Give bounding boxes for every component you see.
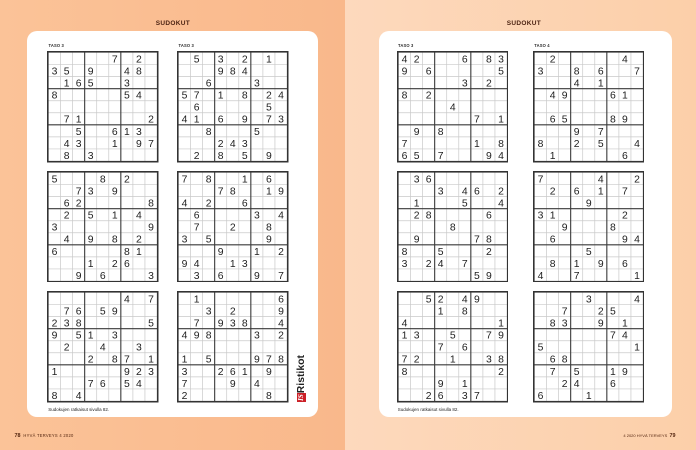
svg-text:2: 2	[425, 391, 431, 402]
svg-text:9: 9	[278, 307, 284, 318]
svg-text:2: 2	[242, 54, 248, 65]
svg-text:2: 2	[486, 246, 492, 257]
svg-text:6: 6	[401, 151, 407, 162]
svg-text:8: 8	[498, 355, 504, 366]
svg-text:3: 3	[242, 139, 248, 150]
svg-text:2: 2	[218, 139, 224, 150]
svg-text:8: 8	[242, 319, 248, 330]
svg-text:8: 8	[206, 174, 212, 185]
svg-text:7: 7	[76, 186, 82, 197]
svg-text:1: 1	[598, 79, 604, 90]
svg-text:2: 2	[88, 355, 94, 366]
svg-text:2: 2	[206, 198, 212, 209]
svg-text:4: 4	[622, 54, 628, 65]
svg-text:1: 1	[148, 355, 154, 366]
svg-text:8: 8	[64, 151, 70, 162]
svg-text:3: 3	[52, 67, 58, 78]
svg-text:3: 3	[401, 259, 407, 270]
svg-text:6: 6	[549, 234, 555, 245]
svg-text:6: 6	[218, 271, 224, 282]
svg-text:7: 7	[437, 151, 443, 162]
svg-text:8: 8	[401, 246, 407, 257]
svg-text:1: 1	[218, 91, 224, 102]
svg-text:1: 1	[230, 259, 236, 270]
svg-text:7: 7	[401, 355, 407, 366]
svg-text:1: 1	[112, 139, 118, 150]
svg-text:1: 1	[498, 115, 504, 126]
svg-text:8: 8	[266, 222, 272, 233]
svg-text:5: 5	[206, 355, 212, 366]
svg-text:2: 2	[634, 174, 640, 185]
svg-text:8: 8	[498, 139, 504, 150]
svg-text:7: 7	[634, 67, 640, 78]
svg-text:7: 7	[64, 115, 70, 126]
svg-text:9: 9	[254, 355, 260, 366]
svg-text:3: 3	[537, 210, 543, 221]
svg-text:6: 6	[194, 210, 200, 221]
svg-text:3: 3	[254, 79, 260, 90]
svg-text:9: 9	[136, 139, 142, 150]
svg-text:5: 5	[473, 271, 479, 282]
svg-text:1: 1	[549, 151, 555, 162]
svg-text:9: 9	[413, 127, 419, 138]
svg-text:9: 9	[124, 367, 130, 378]
svg-text:8: 8	[449, 222, 455, 233]
svg-text:5: 5	[425, 295, 431, 306]
svg-text:9: 9	[437, 379, 443, 390]
svg-text:4: 4	[124, 67, 130, 78]
svg-text:1: 1	[622, 91, 628, 102]
svg-text:6: 6	[610, 91, 616, 102]
svg-text:6: 6	[64, 198, 70, 209]
svg-text:7: 7	[574, 271, 580, 282]
svg-text:5: 5	[182, 91, 188, 102]
svg-text:1: 1	[598, 186, 604, 197]
svg-text:4: 4	[574, 379, 580, 390]
svg-text:6: 6	[206, 79, 212, 90]
svg-text:3: 3	[148, 367, 154, 378]
svg-text:8: 8	[574, 67, 580, 78]
svg-text:4: 4	[254, 379, 260, 390]
svg-text:4: 4	[461, 186, 467, 197]
svg-text:3: 3	[537, 67, 543, 78]
svg-text:3: 3	[461, 391, 467, 402]
svg-text:5: 5	[88, 79, 94, 90]
svg-text:4: 4	[278, 319, 284, 330]
svg-text:6: 6	[76, 307, 82, 318]
svg-text:2: 2	[112, 259, 118, 270]
svg-text:1: 1	[498, 319, 504, 330]
svg-text:9: 9	[562, 91, 568, 102]
svg-text:9: 9	[574, 127, 580, 138]
svg-text:9: 9	[622, 115, 628, 126]
svg-text:9: 9	[112, 186, 118, 197]
svg-text:8: 8	[486, 54, 492, 65]
svg-text:3: 3	[182, 367, 188, 378]
svg-text:9: 9	[486, 271, 492, 282]
svg-text:2: 2	[425, 91, 431, 102]
svg-text:4: 4	[498, 151, 504, 162]
svg-text:9: 9	[148, 222, 154, 233]
svg-text:4: 4	[634, 139, 640, 150]
svg-text:9: 9	[622, 367, 628, 378]
svg-text:7: 7	[266, 115, 272, 126]
svg-text:1: 1	[194, 115, 200, 126]
svg-text:9: 9	[266, 151, 272, 162]
svg-text:6: 6	[230, 367, 236, 378]
svg-text:3: 3	[64, 319, 70, 330]
svg-text:3: 3	[136, 127, 142, 138]
svg-text:4: 4	[278, 210, 284, 221]
svg-text:2: 2	[413, 54, 419, 65]
svg-text:8: 8	[401, 367, 407, 378]
svg-text:8: 8	[549, 259, 555, 270]
svg-text:1: 1	[610, 367, 616, 378]
svg-text:4: 4	[598, 174, 604, 185]
svg-text:3: 3	[230, 319, 236, 330]
svg-text:7: 7	[278, 271, 284, 282]
svg-text:1: 1	[112, 210, 118, 221]
svg-text:3: 3	[88, 151, 94, 162]
svg-text:2: 2	[413, 210, 419, 221]
svg-text:2: 2	[278, 246, 284, 257]
svg-text:2: 2	[136, 367, 142, 378]
svg-text:4: 4	[401, 54, 407, 65]
svg-text:7: 7	[266, 355, 272, 366]
svg-text:7: 7	[437, 343, 443, 354]
svg-text:4: 4	[449, 103, 455, 114]
svg-text:2: 2	[182, 391, 188, 402]
svg-text:8: 8	[218, 151, 224, 162]
svg-text:5: 5	[610, 307, 616, 318]
svg-text:1: 1	[242, 367, 248, 378]
svg-text:6: 6	[124, 259, 130, 270]
svg-text:2: 2	[76, 198, 82, 209]
svg-text:7: 7	[473, 234, 479, 245]
svg-text:9: 9	[498, 331, 504, 342]
svg-text:4: 4	[136, 210, 142, 221]
svg-text:7: 7	[218, 186, 224, 197]
svg-text:3: 3	[562, 319, 568, 330]
svg-text:1: 1	[634, 343, 640, 354]
svg-text:6: 6	[473, 186, 479, 197]
svg-text:2: 2	[278, 331, 284, 342]
svg-text:6: 6	[549, 355, 555, 366]
svg-text:4: 4	[124, 295, 130, 306]
svg-text:5: 5	[124, 91, 130, 102]
svg-text:9: 9	[112, 307, 118, 318]
svg-text:3: 3	[148, 271, 154, 282]
svg-text:3: 3	[461, 79, 467, 90]
svg-text:4: 4	[136, 379, 142, 390]
svg-text:9: 9	[486, 151, 492, 162]
svg-text:2: 2	[425, 259, 431, 270]
svg-text:1: 1	[64, 79, 70, 90]
svg-text:8: 8	[52, 391, 58, 402]
svg-text:5: 5	[242, 151, 248, 162]
svg-text:4: 4	[634, 295, 640, 306]
svg-text:1: 1	[449, 355, 455, 366]
svg-text:1: 1	[266, 54, 272, 65]
svg-text:7: 7	[610, 331, 616, 342]
svg-text:8: 8	[461, 307, 467, 318]
svg-text:5: 5	[562, 115, 568, 126]
svg-text:5: 5	[449, 331, 455, 342]
svg-text:7: 7	[622, 186, 628, 197]
svg-text:4: 4	[461, 295, 467, 306]
svg-text:6: 6	[425, 174, 431, 185]
svg-text:3: 3	[278, 115, 284, 126]
svg-text:9: 9	[413, 234, 419, 245]
svg-text:9: 9	[230, 379, 236, 390]
svg-text:5: 5	[64, 67, 70, 78]
svg-text:2: 2	[52, 319, 58, 330]
svg-text:7: 7	[194, 91, 200, 102]
svg-text:4: 4	[64, 139, 70, 150]
svg-text:6: 6	[112, 127, 118, 138]
svg-text:2: 2	[562, 379, 568, 390]
svg-text:1: 1	[437, 307, 443, 318]
svg-text:6: 6	[437, 391, 443, 402]
svg-text:4: 4	[498, 198, 504, 209]
svg-text:8: 8	[230, 186, 236, 197]
svg-text:5: 5	[206, 234, 212, 245]
svg-text:2: 2	[437, 295, 443, 306]
svg-text:8: 8	[562, 355, 568, 366]
svg-text:6: 6	[425, 67, 431, 78]
svg-text:6: 6	[52, 246, 58, 257]
svg-text:6: 6	[100, 271, 106, 282]
svg-text:8: 8	[278, 355, 284, 366]
svg-text:3: 3	[586, 295, 592, 306]
svg-text:1: 1	[254, 246, 260, 257]
svg-text:1: 1	[182, 355, 188, 366]
svg-text:2: 2	[64, 210, 70, 221]
svg-text:2: 2	[622, 210, 628, 221]
svg-text:4: 4	[634, 234, 640, 245]
svg-text:5: 5	[148, 319, 154, 330]
svg-text:4: 4	[182, 115, 188, 126]
svg-text:2: 2	[266, 91, 272, 102]
svg-text:5: 5	[254, 127, 260, 138]
svg-text:7: 7	[194, 222, 200, 233]
svg-text:9: 9	[266, 367, 272, 378]
svg-text:1: 1	[574, 259, 580, 270]
svg-text:8: 8	[401, 91, 407, 102]
svg-text:4: 4	[182, 331, 188, 342]
svg-text:5: 5	[413, 151, 419, 162]
svg-text:4: 4	[278, 91, 284, 102]
svg-text:2: 2	[64, 343, 70, 354]
svg-text:9: 9	[52, 331, 58, 342]
svg-text:8: 8	[242, 91, 248, 102]
svg-text:8: 8	[52, 91, 58, 102]
svg-text:4: 4	[76, 391, 82, 402]
svg-text:7: 7	[598, 127, 604, 138]
svg-text:4: 4	[64, 234, 70, 245]
svg-text:1: 1	[242, 174, 248, 185]
svg-text:8: 8	[610, 115, 616, 126]
svg-text:1: 1	[76, 115, 82, 126]
svg-text:9: 9	[586, 198, 592, 209]
svg-text:5: 5	[437, 246, 443, 257]
svg-text:1: 1	[124, 127, 130, 138]
svg-text:3: 3	[254, 331, 260, 342]
svg-text:8: 8	[549, 319, 555, 330]
svg-text:9: 9	[218, 319, 224, 330]
svg-text:6: 6	[486, 210, 492, 221]
svg-text:7: 7	[549, 367, 555, 378]
svg-text:4: 4	[574, 79, 580, 90]
svg-text:3: 3	[76, 139, 82, 150]
svg-text:5: 5	[88, 210, 94, 221]
svg-text:9: 9	[88, 67, 94, 78]
svg-text:8: 8	[112, 355, 118, 366]
svg-text:5: 5	[100, 307, 106, 318]
svg-text:7: 7	[148, 295, 154, 306]
svg-text:7: 7	[64, 307, 70, 318]
svg-text:7: 7	[112, 54, 118, 65]
svg-text:8: 8	[537, 139, 543, 150]
svg-text:1: 1	[634, 271, 640, 282]
svg-text:1: 1	[136, 246, 142, 257]
svg-text:2: 2	[498, 186, 504, 197]
svg-text:3: 3	[218, 54, 224, 65]
svg-text:6: 6	[537, 391, 543, 402]
svg-text:1: 1	[88, 259, 94, 270]
svg-text:3: 3	[413, 174, 419, 185]
svg-text:4: 4	[136, 91, 142, 102]
svg-text:4: 4	[401, 319, 407, 330]
svg-text:6: 6	[218, 115, 224, 126]
svg-text:5: 5	[598, 139, 604, 150]
svg-text:6: 6	[549, 115, 555, 126]
svg-text:9: 9	[473, 295, 479, 306]
svg-text:5: 5	[52, 174, 58, 185]
svg-text:2: 2	[413, 355, 419, 366]
svg-text:8: 8	[437, 127, 443, 138]
svg-text:6: 6	[622, 259, 628, 270]
svg-text:9: 9	[218, 67, 224, 78]
svg-text:3: 3	[206, 307, 212, 318]
svg-text:8: 8	[425, 210, 431, 221]
svg-text:1: 1	[266, 186, 272, 197]
svg-text:5: 5	[537, 343, 543, 354]
svg-text:5: 5	[574, 367, 580, 378]
svg-text:7: 7	[194, 319, 200, 330]
svg-text:6: 6	[574, 186, 580, 197]
svg-text:3: 3	[242, 259, 248, 270]
svg-text:4: 4	[537, 271, 543, 282]
svg-text:4: 4	[182, 198, 188, 209]
svg-text:7: 7	[537, 174, 543, 185]
svg-text:9: 9	[218, 246, 224, 257]
svg-text:3: 3	[498, 54, 504, 65]
svg-text:8: 8	[148, 198, 154, 209]
svg-text:3: 3	[124, 79, 130, 90]
svg-text:6: 6	[242, 198, 248, 209]
svg-text:3: 3	[486, 355, 492, 366]
svg-text:4: 4	[100, 343, 106, 354]
svg-text:4: 4	[242, 67, 248, 78]
svg-text:2: 2	[194, 151, 200, 162]
svg-text:4: 4	[622, 331, 628, 342]
svg-text:4: 4	[230, 139, 236, 150]
svg-text:6: 6	[598, 67, 604, 78]
svg-text:8: 8	[206, 331, 212, 342]
svg-text:7: 7	[473, 115, 479, 126]
svg-text:8: 8	[206, 127, 212, 138]
svg-text:9: 9	[562, 222, 568, 233]
svg-text:9: 9	[76, 271, 82, 282]
svg-text:3: 3	[112, 331, 118, 342]
svg-text:2: 2	[486, 79, 492, 90]
svg-text:6: 6	[461, 343, 467, 354]
svg-text:9: 9	[88, 234, 94, 245]
svg-text:2: 2	[136, 234, 142, 245]
svg-text:6: 6	[622, 151, 628, 162]
svg-text:4: 4	[194, 259, 200, 270]
svg-text:9: 9	[598, 319, 604, 330]
svg-text:5: 5	[76, 331, 82, 342]
svg-text:8: 8	[100, 174, 106, 185]
svg-text:2: 2	[574, 139, 580, 150]
svg-text:7: 7	[486, 331, 492, 342]
svg-text:5: 5	[586, 246, 592, 257]
svg-text:8: 8	[136, 67, 142, 78]
svg-text:2: 2	[136, 54, 142, 65]
svg-text:3: 3	[413, 331, 419, 342]
svg-text:5: 5	[194, 54, 200, 65]
svg-text:9: 9	[401, 67, 407, 78]
svg-text:8: 8	[610, 222, 616, 233]
svg-text:6: 6	[278, 295, 284, 306]
svg-text:7: 7	[182, 174, 188, 185]
svg-text:8: 8	[486, 234, 492, 245]
svg-text:3: 3	[136, 343, 142, 354]
svg-text:8: 8	[76, 319, 82, 330]
svg-text:2: 2	[549, 186, 555, 197]
svg-text:2: 2	[498, 367, 504, 378]
svg-text:1: 1	[413, 198, 419, 209]
svg-text:3: 3	[254, 210, 260, 221]
svg-text:6: 6	[461, 54, 467, 65]
svg-text:1: 1	[88, 331, 94, 342]
svg-text:6: 6	[266, 174, 272, 185]
svg-text:7: 7	[124, 355, 130, 366]
svg-text:3: 3	[437, 186, 443, 197]
svg-text:4: 4	[549, 91, 555, 102]
svg-text:3: 3	[194, 271, 200, 282]
svg-text:9: 9	[266, 234, 272, 245]
svg-text:1: 1	[194, 295, 200, 306]
svg-text:7: 7	[88, 379, 94, 390]
svg-text:8: 8	[230, 67, 236, 78]
svg-text:1: 1	[549, 210, 555, 221]
svg-text:7: 7	[562, 307, 568, 318]
svg-text:6: 6	[100, 379, 106, 390]
svg-text:9: 9	[242, 115, 248, 126]
svg-text:5: 5	[498, 67, 504, 78]
svg-text:2: 2	[230, 307, 236, 318]
svg-text:3: 3	[88, 186, 94, 197]
svg-text:2: 2	[124, 174, 130, 185]
svg-text:9: 9	[254, 271, 260, 282]
svg-text:9: 9	[194, 331, 200, 342]
svg-text:8: 8	[266, 391, 272, 402]
svg-text:7: 7	[461, 259, 467, 270]
svg-text:2: 2	[230, 222, 236, 233]
